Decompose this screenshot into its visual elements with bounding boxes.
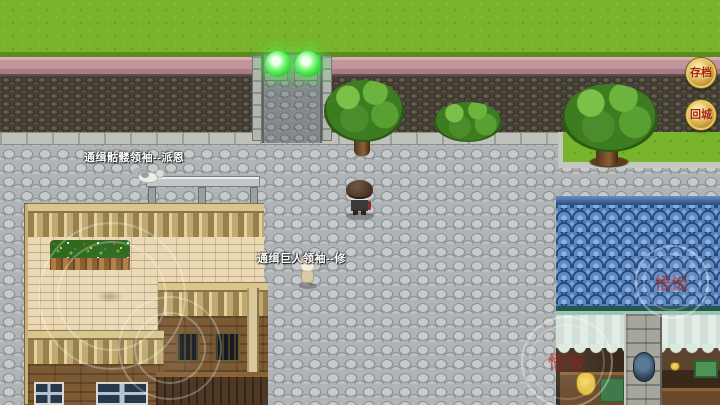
bush [434, 102, 502, 142]
character-shadow [299, 283, 317, 289]
shop-counter [662, 388, 720, 405]
stone-wall-cap [0, 57, 720, 76]
watermark-text: 悟饭 [655, 270, 689, 294]
tree-canopy [324, 80, 404, 142]
player-hair [346, 180, 373, 199]
virtual-joystick-knob-inner[interactable] [134, 312, 206, 384]
fence-post [250, 187, 258, 204]
stone-column [624, 314, 662, 405]
game-viewport: 通缉骷髅领袖--派恩 通缉巨人领袖--修 存档 回城 悟饭 悟饭 [0, 0, 720, 405]
watermark-button-upper[interactable]: 悟饭 [635, 245, 709, 319]
fence-post [198, 187, 206, 204]
player-foot [361, 210, 366, 215]
save-button[interactable]: 存档 [686, 58, 716, 88]
wanted-label-giant-leader: 通缉巨人领袖--修 [257, 250, 346, 266]
cat-npc[interactable] [132, 166, 168, 190]
window [34, 382, 64, 405]
gold-item [670, 362, 680, 371]
grass-field [0, 0, 720, 57]
player-foot [353, 210, 358, 215]
green-lamp-icon [265, 51, 291, 77]
character-shadow [346, 212, 374, 220]
roof-ridge [556, 196, 720, 205]
watermark-button-lower[interactable]: 悟饭 [521, 316, 613, 405]
return-city-button[interactable]: 回城 [686, 100, 716, 130]
player-character[interactable] [344, 178, 376, 220]
cat-head [155, 169, 165, 178]
gate-pillar-left [252, 55, 262, 141]
wanted-label-skeleton-leader: 通缉骷髅领袖--派恩 [84, 149, 184, 165]
cat-patch [141, 172, 149, 178]
watermark-text: 悟饭 [548, 349, 586, 375]
green-crate [694, 360, 718, 378]
tree-canopy [562, 84, 658, 152]
column-emblem [633, 352, 655, 382]
green-lamp-icon [295, 51, 321, 77]
